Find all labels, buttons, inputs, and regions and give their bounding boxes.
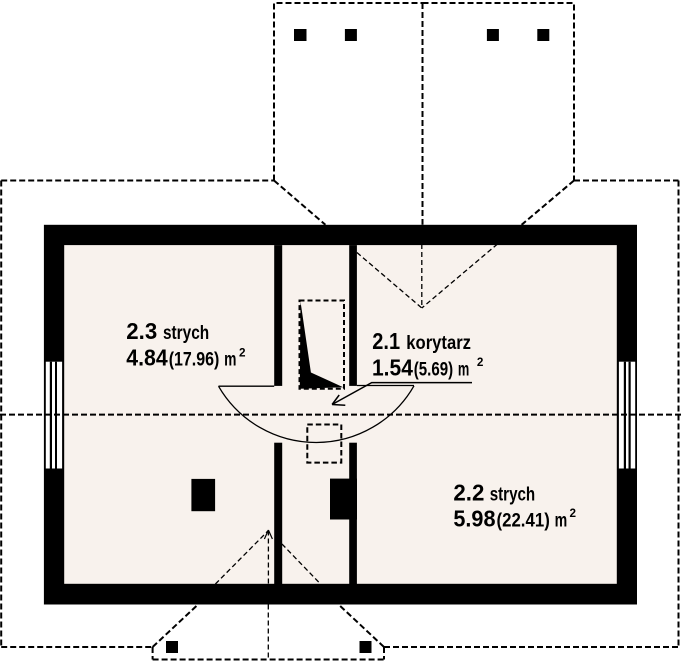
svg-text:2: 2 [570,507,577,520]
svg-text:strych: strych [163,322,209,344]
svg-text:2.2: 2.2 [453,479,484,505]
svg-text:korytarz: korytarz [406,332,471,354]
svg-text:(22.41): (22.41) [497,509,550,531]
svg-text:2: 2 [477,356,484,369]
svg-text:m: m [555,509,568,531]
svg-text:m: m [224,349,236,371]
svg-text:5.98: 5.98 [453,505,495,531]
svg-text:1.54: 1.54 [372,354,413,380]
svg-text:4.84: 4.84 [126,345,168,371]
svg-text:2.1: 2.1 [372,328,400,354]
svg-text:2: 2 [239,346,246,359]
svg-text:2.3: 2.3 [126,318,157,344]
svg-text:strych: strych [490,483,536,505]
svg-text:(5.69): (5.69) [414,358,453,380]
svg-text:(17.96): (17.96) [169,349,220,371]
svg-text:m: m [458,358,469,380]
